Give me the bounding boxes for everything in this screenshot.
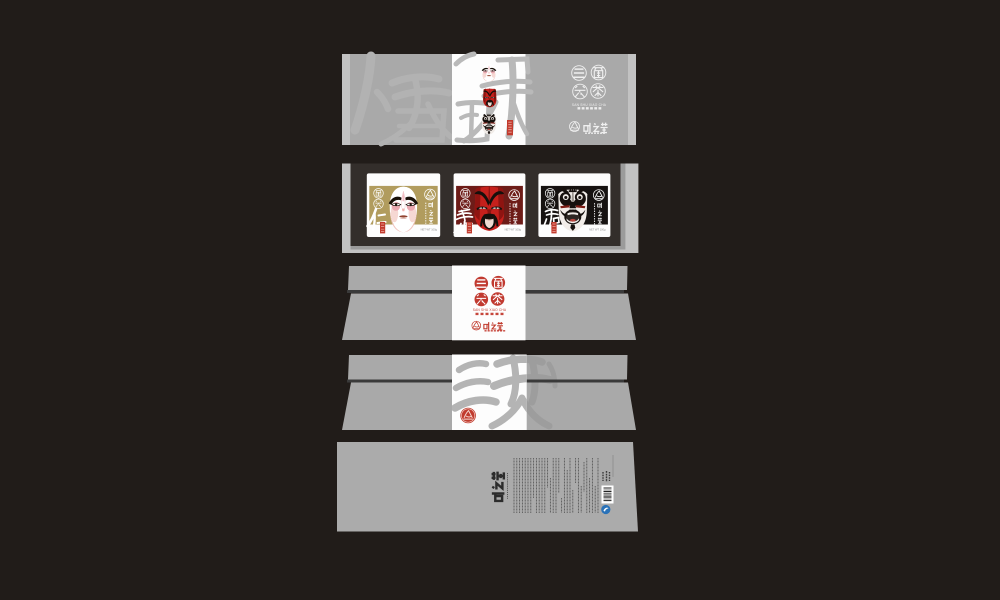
svg-text:NET WT 100g: NET WT 100g	[589, 228, 606, 232]
svg-text:NET WT 100g: NET WT 100g	[505, 228, 522, 232]
svg-text:SAN SHU XIAO CHA: SAN SHU XIAO CHA	[572, 103, 607, 107]
svg-text:SAN SHU XIAO CHA: SAN SHU XIAO CHA	[473, 308, 507, 312]
svg-text:NET WT 100g: NET WT 100g	[421, 228, 438, 232]
